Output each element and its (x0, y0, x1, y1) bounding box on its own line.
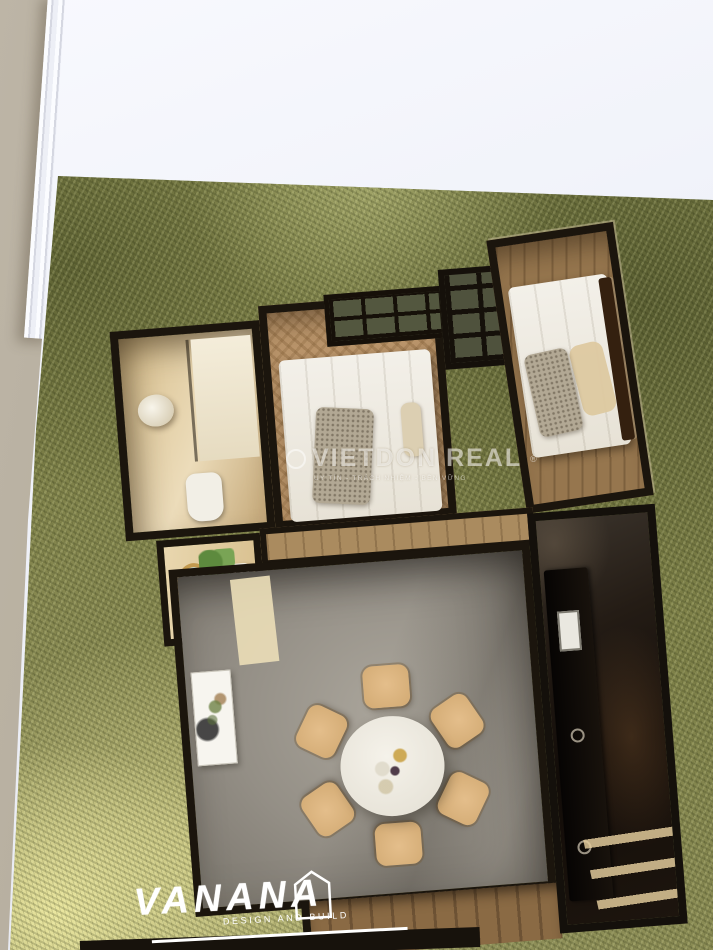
brand-logo: VANANA DESIGN AND BUILD (132, 861, 407, 944)
bedroom-1 (258, 292, 457, 530)
watermark-brand-text: VIETDON REAL (312, 444, 522, 473)
floor-plan (108, 270, 688, 950)
bathroom (110, 320, 276, 541)
dining-chair (362, 664, 411, 709)
watermark: VIETDON REAL ® UY TÍN - TRÁCH NHIỆM - BỀ… (286, 444, 537, 482)
bathroom-sink (137, 393, 175, 428)
watermark-tagline: UY TÍN - TRÁCH NHIỆM - BỀN VỮNG (314, 475, 537, 482)
cabinet-knob (570, 728, 585, 743)
skylight-grid (323, 286, 447, 347)
bed-2 (508, 273, 632, 458)
living-dining-room (168, 542, 556, 917)
toilet (185, 472, 225, 523)
registered-mark-icon: ® (530, 454, 537, 464)
watermark-logo-icon (286, 449, 306, 469)
island-sink (557, 610, 582, 652)
bed-1 (278, 349, 442, 522)
brand-house-icon (292, 869, 333, 921)
dining-set (290, 664, 494, 868)
entry-mat (230, 575, 279, 665)
dining-table (337, 712, 449, 820)
wall-art (191, 669, 238, 766)
shower-area (190, 335, 259, 461)
dining-chair (374, 821, 423, 866)
photo-of-floor-plan: VIETDON REAL ® UY TÍN - TRÁCH NHIỆM - BỀ… (0, 0, 713, 950)
